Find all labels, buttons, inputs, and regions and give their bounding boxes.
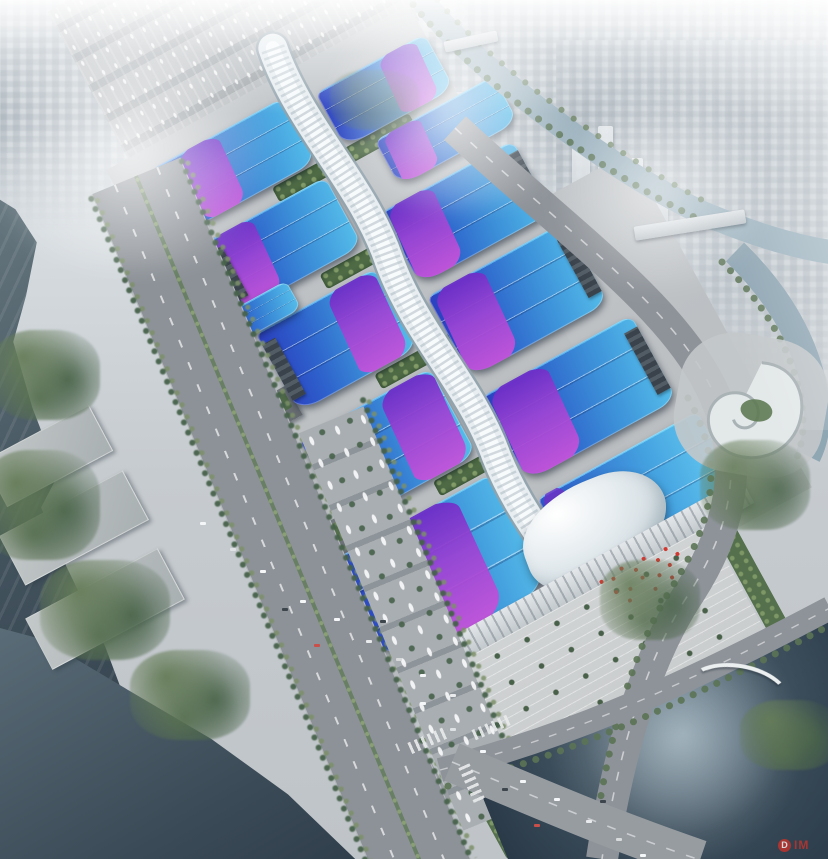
park-trees xyxy=(700,440,810,530)
watermark-logo-icon: D xyxy=(778,839,791,852)
north-trees xyxy=(330,70,420,130)
aerial-render: D IM xyxy=(0,0,828,859)
watermark-text: IM xyxy=(794,838,809,852)
watermark: D IM xyxy=(778,838,824,854)
park-trees xyxy=(740,700,828,770)
park-trees xyxy=(600,560,700,640)
